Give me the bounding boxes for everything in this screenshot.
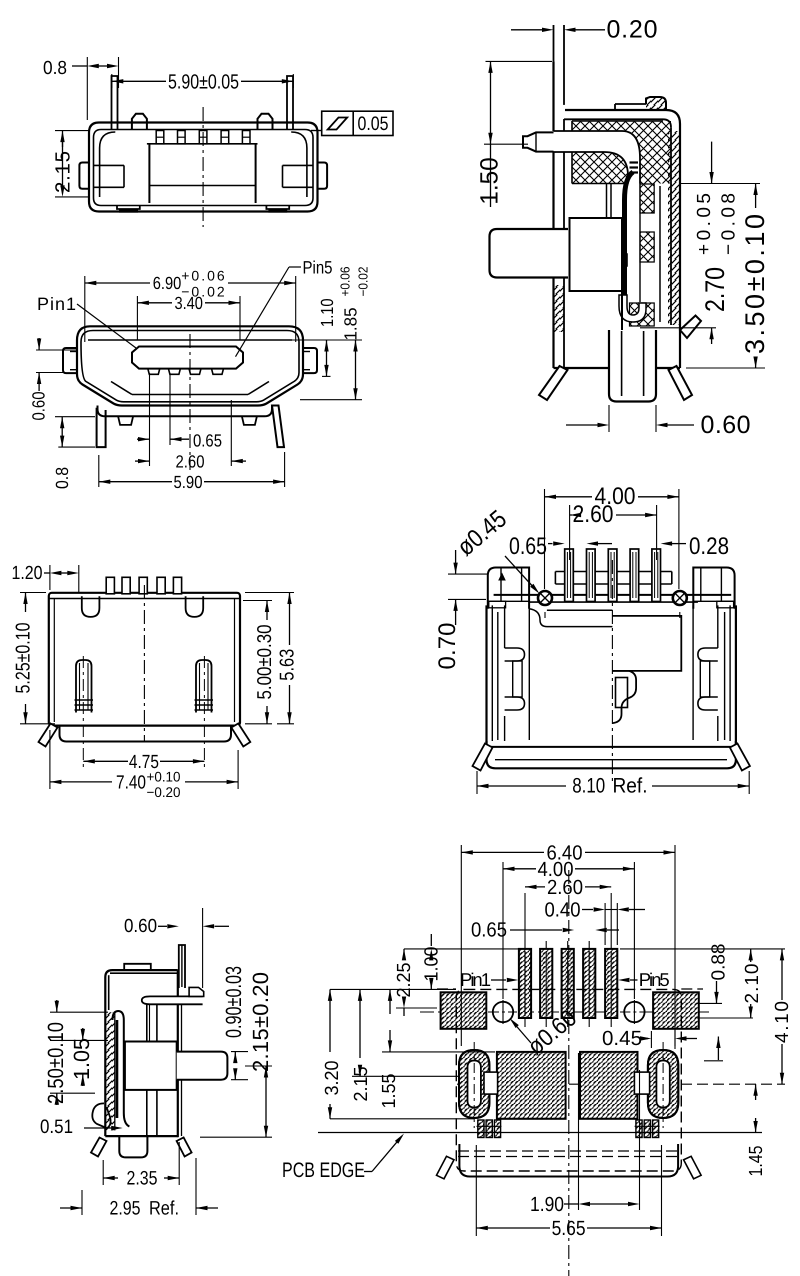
svg-text:5.25±0.10: 5.25±0.10	[13, 623, 35, 694]
svg-text:2.50±0.10: 2.50±0.10	[43, 1022, 68, 1104]
svg-text:0.90±0.03: 0.90±0.03	[221, 966, 246, 1038]
svg-text:−0.02: −0.02	[356, 267, 371, 297]
svg-text:0.60: 0.60	[701, 411, 751, 439]
svg-text:0.40: 0.40	[545, 899, 581, 922]
svg-text:3.20: 3.20	[322, 1061, 343, 1096]
svg-text:2.95: 2.95	[110, 1198, 141, 1220]
svg-text:0.70: 0.70	[434, 623, 461, 670]
svg-text:2.15: 2.15	[351, 1067, 372, 1102]
svg-text:0.60: 0.60	[29, 391, 49, 420]
svg-text:2.15±0.20: 2.15±0.20	[248, 972, 273, 1072]
svg-text:+0.05: +0.05	[694, 193, 715, 255]
svg-text:1.45: 1.45	[746, 1146, 767, 1177]
svg-text:Pin5: Pin5	[639, 969, 670, 990]
svg-text:2.70: 2.70	[700, 267, 730, 312]
svg-text:Pin1: Pin1	[460, 969, 491, 990]
svg-text:2.10: 2.10	[742, 964, 763, 1004]
svg-text:0.8: 0.8	[43, 58, 67, 79]
svg-text:5.90: 5.90	[174, 472, 203, 492]
svg-text:0.8: 0.8	[52, 467, 72, 489]
svg-text:0.65: 0.65	[193, 430, 222, 450]
svg-text:0.20: 0.20	[607, 16, 658, 44]
svg-text:+0.06: +0.06	[338, 267, 353, 297]
svg-text:1.20: 1.20	[12, 563, 43, 584]
svg-text:2.60: 2.60	[176, 452, 205, 472]
svg-text:0.65: 0.65	[509, 533, 547, 560]
svg-text:0.45: 0.45	[602, 1027, 642, 1050]
svg-text:0.51: 0.51	[40, 1116, 73, 1138]
svg-text:1.55: 1.55	[379, 1074, 400, 1109]
svg-text:2.35: 2.35	[127, 1168, 158, 1190]
svg-text:0.65: 0.65	[471, 919, 507, 942]
svg-text:Pin1: Pin1	[37, 294, 76, 314]
svg-text:6.90: 6.90	[153, 273, 182, 293]
svg-text:−0.08: −0.08	[719, 193, 740, 255]
svg-text:2.25: 2.25	[394, 963, 415, 998]
svg-text:0.28: 0.28	[689, 533, 729, 560]
svg-text:+0.06: +0.06	[181, 268, 225, 284]
svg-text:1.50: 1.50	[476, 157, 504, 205]
svg-text:2.60: 2.60	[547, 876, 583, 899]
svg-text:1.90: 1.90	[530, 1193, 564, 1216]
svg-text:5.90±0.05: 5.90±0.05	[168, 71, 239, 94]
svg-text:5.65: 5.65	[552, 1217, 586, 1240]
svg-text:Ref.: Ref.	[613, 775, 648, 798]
svg-text:5.00±0.30: 5.00±0.30	[254, 625, 276, 700]
svg-text:+0.10: +0.10	[147, 769, 181, 785]
svg-text:1.85: 1.85	[341, 307, 361, 340]
svg-text:−0.20: −0.20	[147, 784, 181, 800]
svg-text:3.40: 3.40	[174, 293, 203, 313]
svg-text:0.60: 0.60	[124, 916, 157, 937]
svg-text:1.05: 1.05	[69, 1038, 94, 1080]
svg-text:Ref.: Ref.	[149, 1198, 179, 1220]
svg-text:7.40: 7.40	[116, 773, 146, 794]
svg-text:1.00: 1.00	[421, 947, 442, 982]
svg-text:4.10: 4.10	[772, 1001, 793, 1043]
svg-text:0.05: 0.05	[358, 113, 389, 135]
svg-text:8.10: 8.10	[572, 775, 605, 798]
svg-text:5.63: 5.63	[277, 649, 299, 681]
svg-text:3.50±0.10: 3.50±0.10	[740, 214, 770, 354]
svg-text:1.10: 1.10	[317, 298, 337, 327]
svg-text:Pin5: Pin5	[303, 258, 333, 278]
svg-text:PCB EDGE: PCB EDGE	[282, 1159, 365, 1182]
